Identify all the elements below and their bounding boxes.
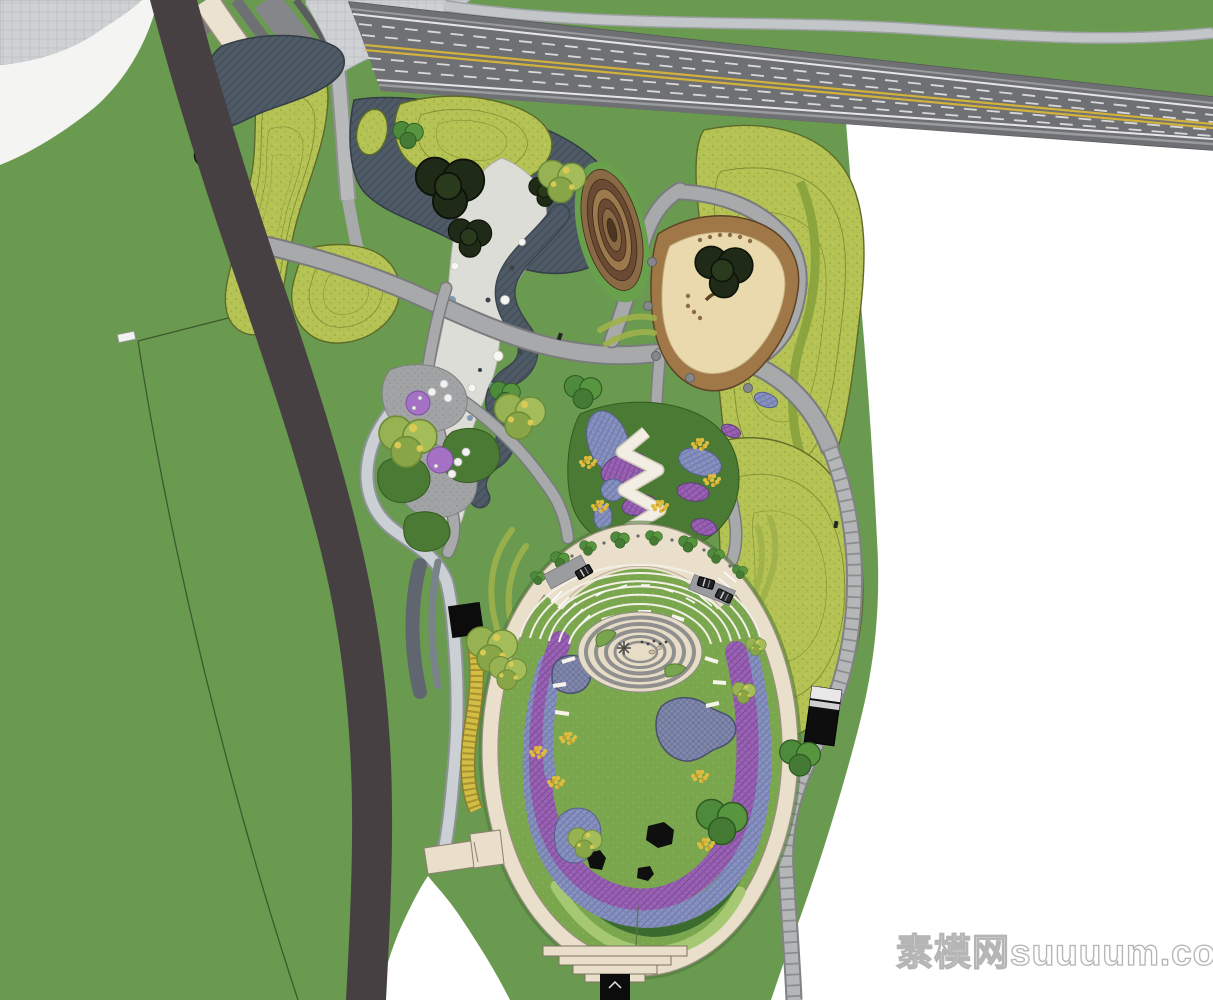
star-sculpture — [617, 641, 631, 655]
landscape-master-plan — [0, 0, 1213, 1000]
stone — [657, 646, 662, 650]
stone-crescent — [413, 565, 421, 692]
stone — [649, 650, 655, 654]
site-plan-canvas: 素模网suuuum.com — [0, 0, 1213, 1000]
watermark: 素模网suuuum.com — [896, 922, 1212, 970]
flower-mound — [406, 391, 430, 415]
flower-mound — [427, 447, 453, 473]
entrance-gate — [600, 974, 630, 1000]
center-plaza — [578, 612, 702, 692]
